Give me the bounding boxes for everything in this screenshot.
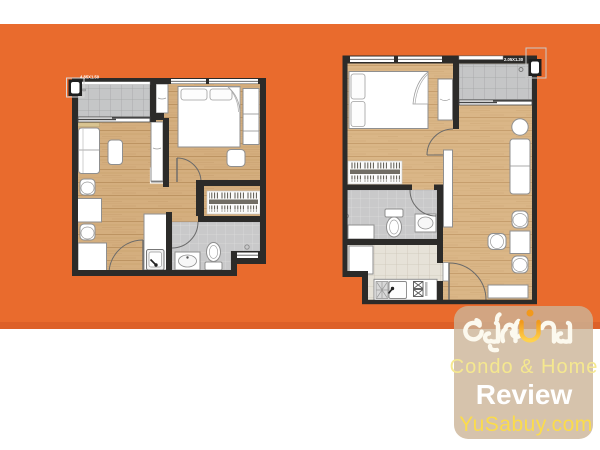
svg-text:YuSabuy.com: YuSabuy.com [459,413,593,436]
svg-text:2.05X1.30: 2.05X1.30 [504,57,524,62]
svg-text:4.85X1.50: 4.85X1.50 [80,74,100,79]
svg-text:Condo & Home: Condo & Home [450,356,599,378]
svg-text:Review: Review [476,379,573,410]
